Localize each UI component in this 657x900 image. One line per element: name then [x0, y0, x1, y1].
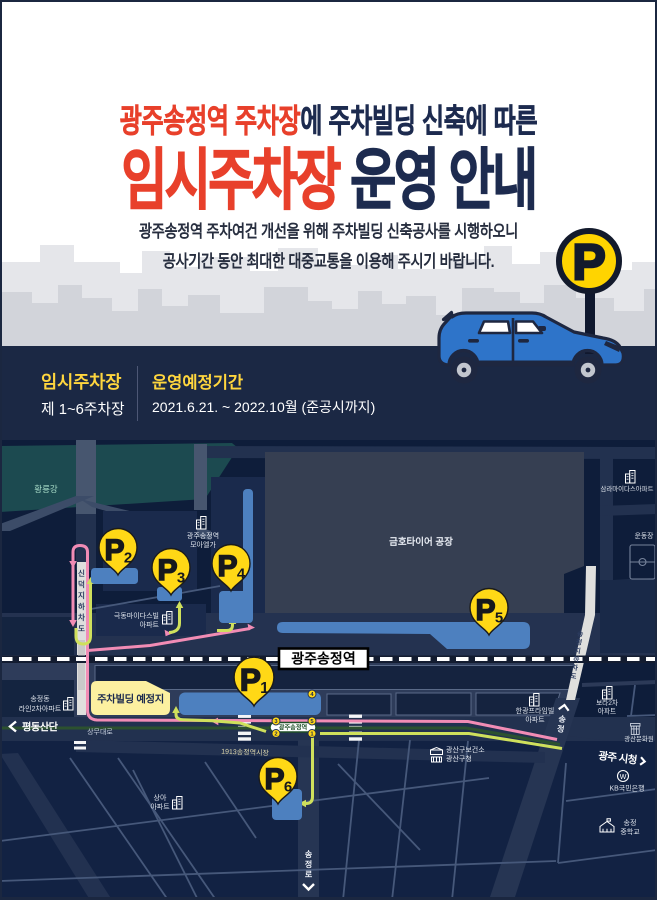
svg-text:라인2차아파트: 라인2차아파트: [19, 704, 62, 713]
svg-text:P: P: [572, 234, 605, 290]
svg-text:6: 6: [284, 779, 292, 796]
svg-text:모아엘가: 모아엘가: [190, 540, 216, 549]
svg-text:P: P: [475, 594, 495, 627]
svg-text:극동마이다스빌: 극동마이다스빌: [114, 611, 159, 620]
svg-text:KB국민은행: KB국민은행: [609, 784, 644, 793]
svg-text:1: 1: [260, 680, 269, 697]
svg-text:중학교: 중학교: [620, 827, 640, 836]
svg-text:송정: 송정: [624, 818, 637, 827]
svg-text:보라2차: 보라2차: [596, 698, 618, 707]
svg-text:P: P: [240, 661, 261, 697]
svg-text:P: P: [264, 763, 284, 796]
svg-text:상아: 상아: [154, 793, 167, 802]
svg-text:4: 4: [237, 566, 246, 583]
svg-text:P: P: [217, 550, 237, 583]
svg-text:2: 2: [274, 732, 277, 738]
svg-text:운동장: 운동장: [635, 531, 654, 540]
svg-text:아파트: 아파트: [140, 620, 160, 629]
svg-text:P: P: [157, 554, 177, 587]
svg-text:광산구보건소: 광산구보건소: [446, 745, 485, 754]
svg-text:송정로: 송정로: [305, 849, 313, 879]
svg-text:광주송정역: 광주송정역: [279, 724, 308, 732]
svg-text:P: P: [104, 534, 124, 567]
svg-text:광산구청: 광산구청: [446, 754, 472, 763]
svg-text:아파트: 아파트: [525, 715, 545, 724]
svg-text:아파트: 아파트: [150, 802, 170, 811]
svg-text:3: 3: [177, 570, 185, 587]
svg-text:삼라마이다스아파트: 삼라마이다스아파트: [601, 484, 654, 493]
svg-text:주차빌딩 예정지: 주차빌딩 예정지: [97, 693, 164, 706]
svg-text:평동산단: 평동산단: [22, 721, 59, 734]
svg-text:W: W: [620, 774, 627, 781]
svg-text:광주송정역: 광주송정역: [187, 531, 219, 540]
svg-text:5: 5: [495, 610, 503, 627]
svg-text:금호타이어 공장: 금호타이어 공장: [389, 536, 453, 548]
svg-text:광주송정역: 광주송정역: [291, 651, 355, 667]
svg-text:광산문화원: 광산문화원: [624, 734, 654, 743]
svg-text:아파트: 아파트: [598, 707, 616, 716]
svg-text:황룡강: 황룡강: [34, 484, 58, 494]
svg-text:한광프라임빌: 한광프라임빌: [516, 706, 555, 715]
svg-text:송정동: 송정동: [30, 694, 50, 703]
svg-text:2: 2: [124, 550, 132, 567]
svg-text:상무대로: 상무대로: [87, 727, 113, 736]
